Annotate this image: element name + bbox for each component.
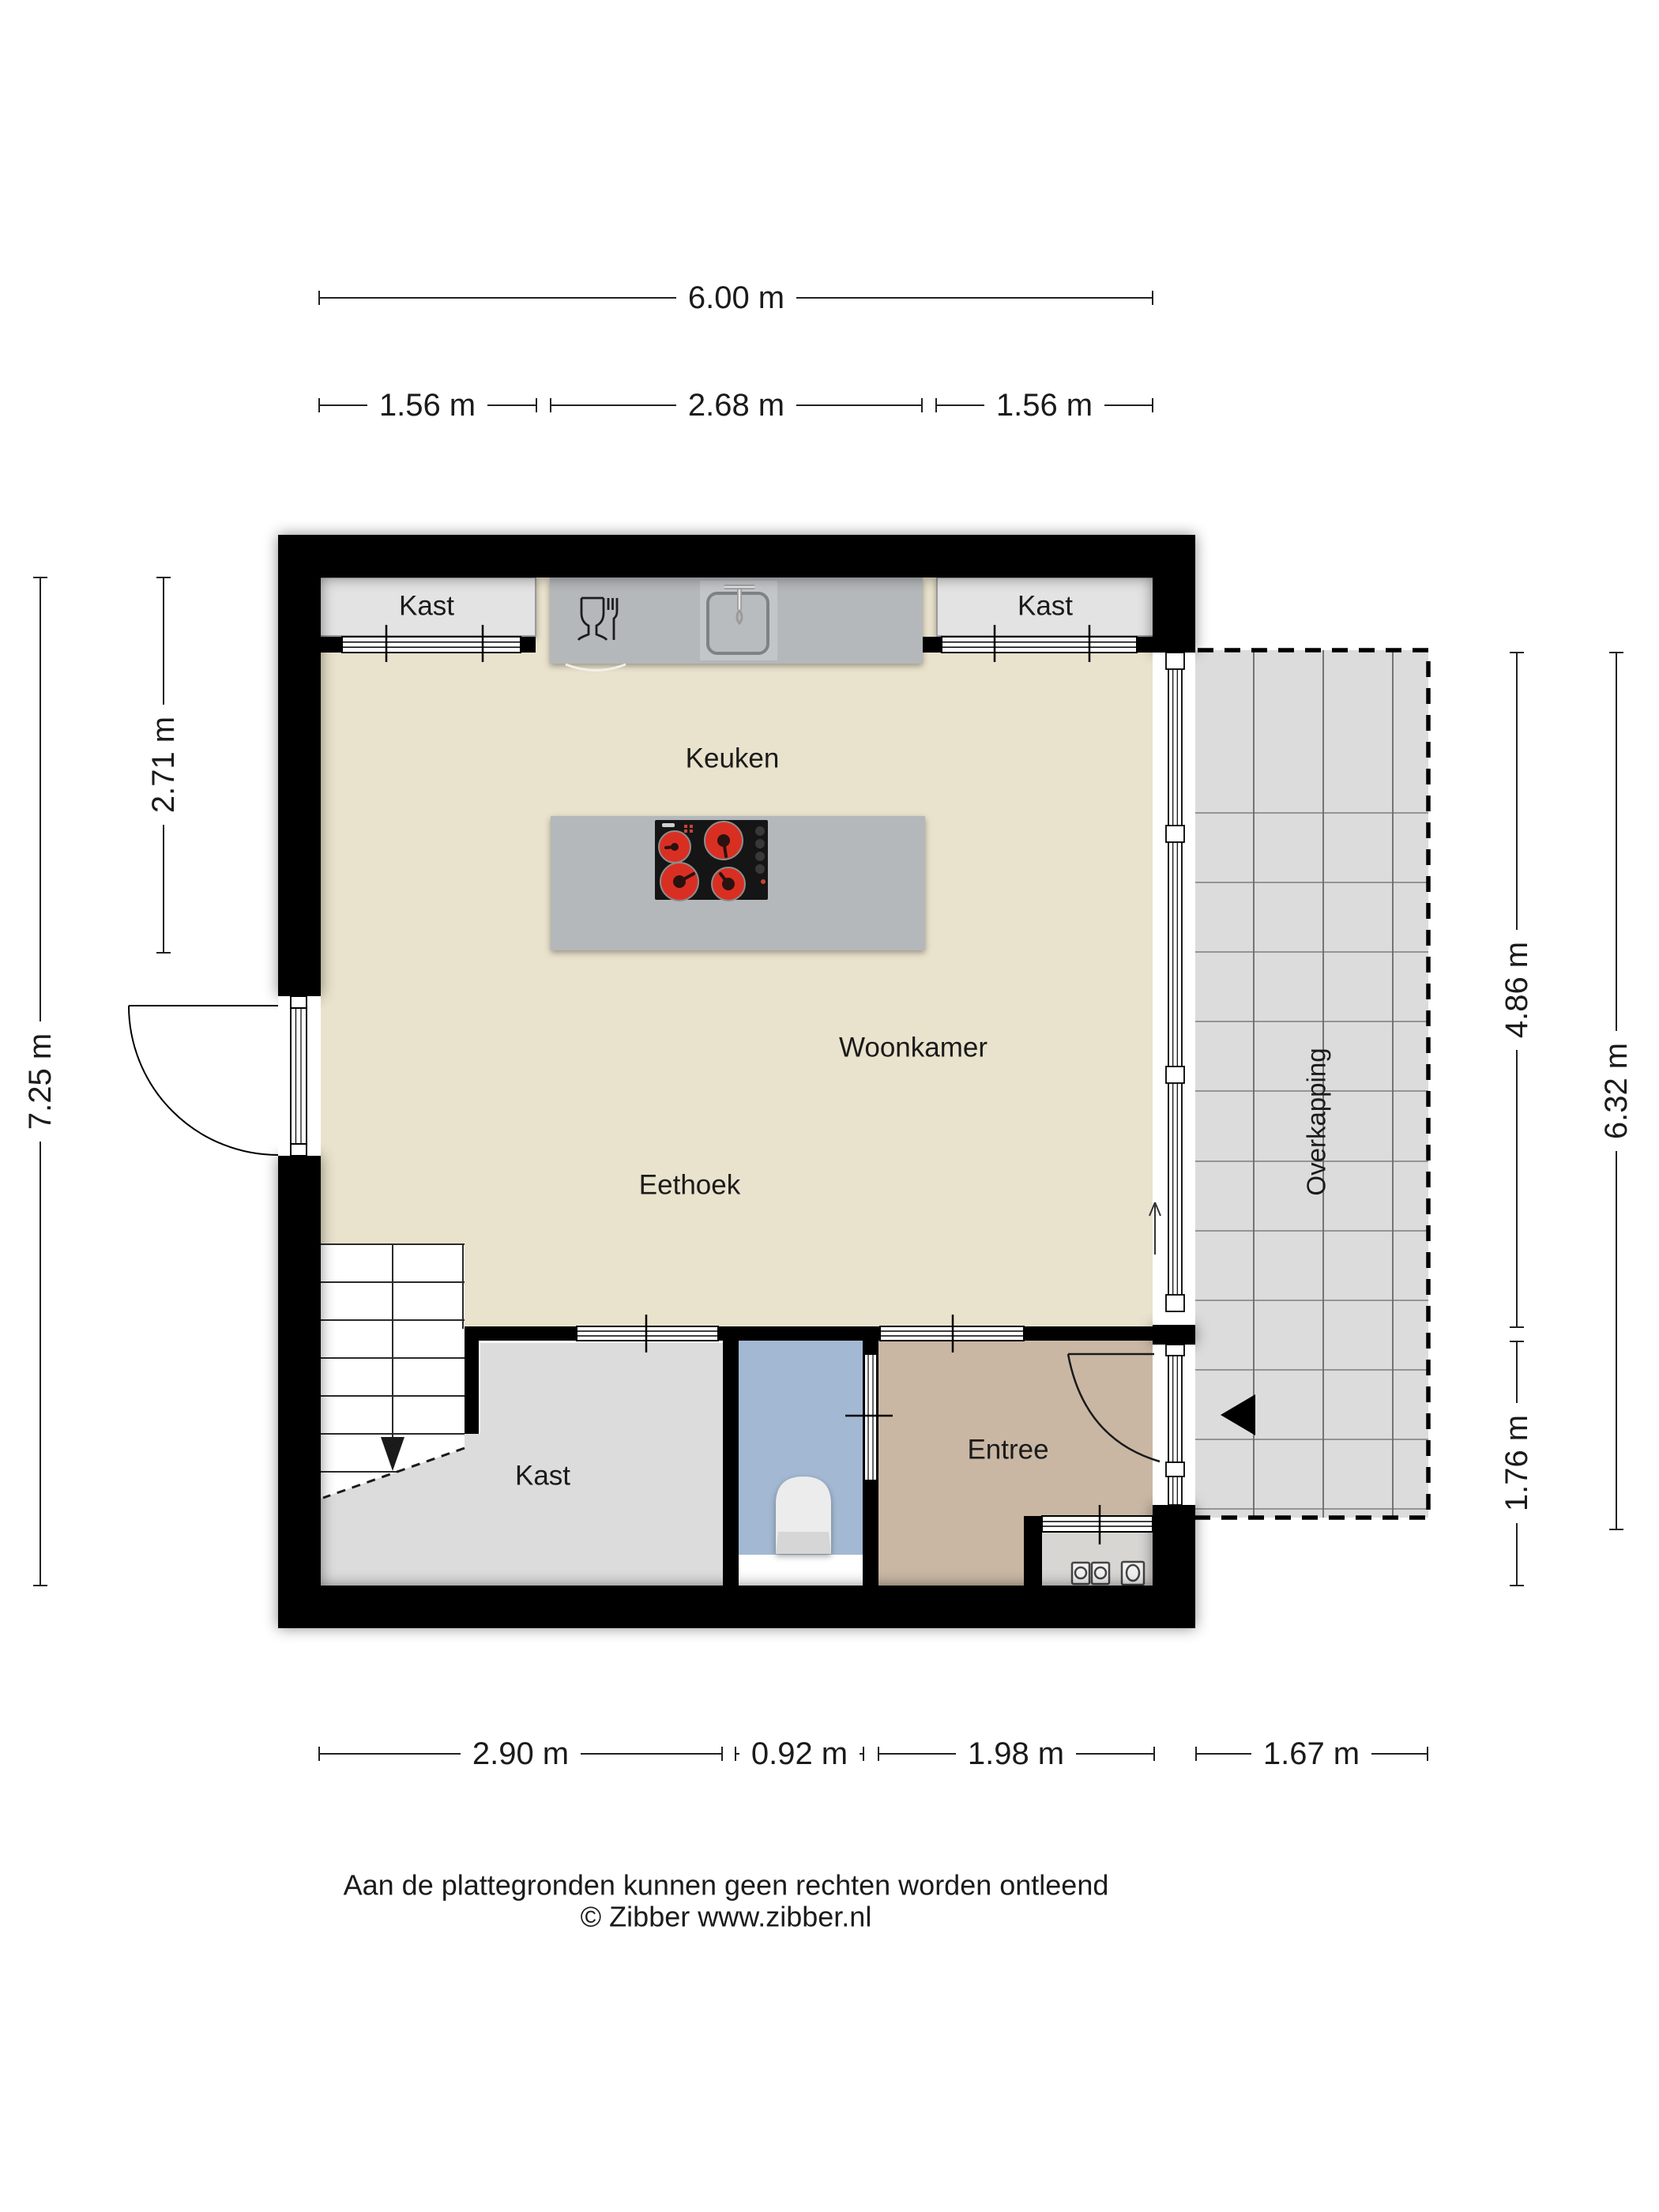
svg-text:6.00 m: 6.00 m [688, 280, 784, 315]
svg-text:Eethoek: Eethoek [639, 1170, 741, 1201]
svg-text:1.56 m: 1.56 m [996, 388, 1093, 423]
svg-text:1.76 m: 1.76 m [1499, 1415, 1534, 1511]
svg-text:7.25 m: 7.25 m [23, 1033, 58, 1130]
svg-text:2.71 m: 2.71 m [146, 717, 181, 813]
svg-text:Kast: Kast [515, 1461, 570, 1492]
svg-text:Kast: Kast [1018, 591, 1073, 622]
svg-text:Aan de plattegronden kunnen ge: Aan de plattegronden kunnen geen rechten… [344, 1869, 1109, 1902]
svg-text:Entree: Entree [967, 1435, 1048, 1465]
svg-text:Overkapping: Overkapping [1302, 1048, 1331, 1195]
svg-text:4.86 m: 4.86 m [1499, 942, 1534, 1038]
svg-text:2.90 m: 2.90 m [472, 1736, 569, 1771]
svg-text:6.32 m: 6.32 m [1599, 1043, 1634, 1139]
svg-text:1.98 m: 1.98 m [968, 1736, 1064, 1771]
svg-text:1.67 m: 1.67 m [1263, 1736, 1360, 1771]
svg-text:© Zibber www.zibber.nl: © Zibber www.zibber.nl [581, 1901, 872, 1933]
svg-text:0.92 m: 0.92 m [751, 1736, 848, 1771]
svg-text:Keuken: Keuken [686, 743, 780, 774]
svg-text:Kast: Kast [399, 591, 454, 622]
svg-text:Woonkamer: Woonkamer [839, 1033, 987, 1063]
svg-text:2.68 m: 2.68 m [688, 388, 784, 423]
svg-text:1.56 m: 1.56 m [379, 388, 476, 423]
